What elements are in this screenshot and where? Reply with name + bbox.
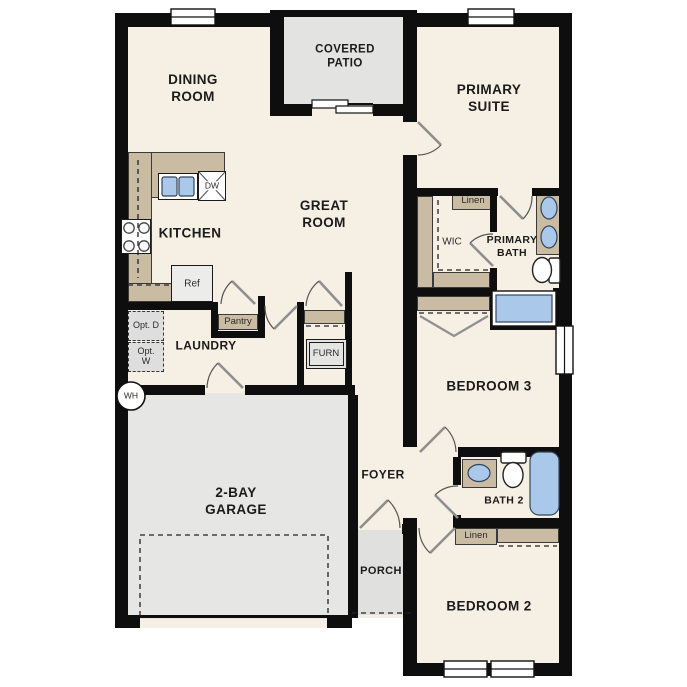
label-linen-primary: Linen	[461, 196, 484, 206]
label-bedroom2: BEDROOM 2	[446, 599, 531, 616]
garage-door-zone-dashed	[140, 535, 328, 616]
label-opt-d: Opt. D	[133, 321, 159, 331]
label-wic: WIC	[442, 237, 461, 248]
label-garage: 2-BAY GARAGE	[194, 485, 279, 519]
label-foyer: FOYER	[361, 468, 404, 483]
door-laundry	[265, 306, 297, 329]
window-bedroom2-left	[444, 661, 487, 677]
label-furn: FURN	[313, 349, 339, 359]
label-kitchen: KITCHEN	[135, 226, 245, 243]
window-bedroom2-right	[491, 661, 534, 677]
label-linen-hall: Linen	[464, 531, 487, 541]
label-porch: PORCH	[360, 565, 402, 579]
plan-symbols-layer	[0, 0, 687, 687]
door-furn-closet	[306, 281, 342, 306]
label-bath2: BATH 2	[484, 494, 524, 507]
label-laundry: LAUNDRY	[175, 339, 236, 354]
window-bedroom3	[556, 326, 573, 374]
label-bedroom3: BEDROOM 3	[446, 379, 531, 396]
door-pantry	[221, 281, 255, 304]
label-dining-room: DINING ROOM	[147, 72, 239, 106]
bath2-toilet-icon	[501, 452, 526, 488]
door-bath2	[435, 486, 458, 518]
door-bedroom3-closet-bifold	[420, 316, 488, 336]
window-primary-suite	[468, 9, 514, 25]
bath2-sink-icon	[468, 465, 490, 482]
door-primary-bath	[500, 196, 532, 219]
door-bedroom2	[419, 528, 455, 553]
door-front-entry	[360, 500, 400, 528]
label-wh: WH	[124, 391, 138, 400]
sliding-door-patio	[312, 100, 373, 113]
label-great-room: GREAT ROOM	[289, 198, 359, 232]
kitchen-sink-icon	[162, 177, 194, 196]
primary-shower-icon	[492, 291, 556, 326]
floor-plan: DINING ROOM COVERED PATIO PRIMARY SUITE …	[0, 0, 687, 687]
label-primary-suite: PRIMARY SUITE	[443, 82, 535, 116]
label-covered-patio: COVERED PATIO	[304, 43, 386, 72]
label-primary-bath: PRIMARY BATH	[479, 234, 545, 260]
primary-toilet-icon	[533, 258, 561, 284]
door-garage-entry	[207, 363, 243, 388]
door-primary-suite	[418, 122, 441, 155]
label-opt-w: Opt. W	[133, 347, 159, 367]
label-pantry: Pantry	[224, 317, 251, 327]
door-bedroom3	[420, 427, 456, 452]
window-dining	[171, 9, 215, 25]
label-ref: Ref	[184, 279, 200, 290]
label-dw: DW	[204, 181, 220, 190]
bath2-tub-icon	[530, 452, 559, 515]
